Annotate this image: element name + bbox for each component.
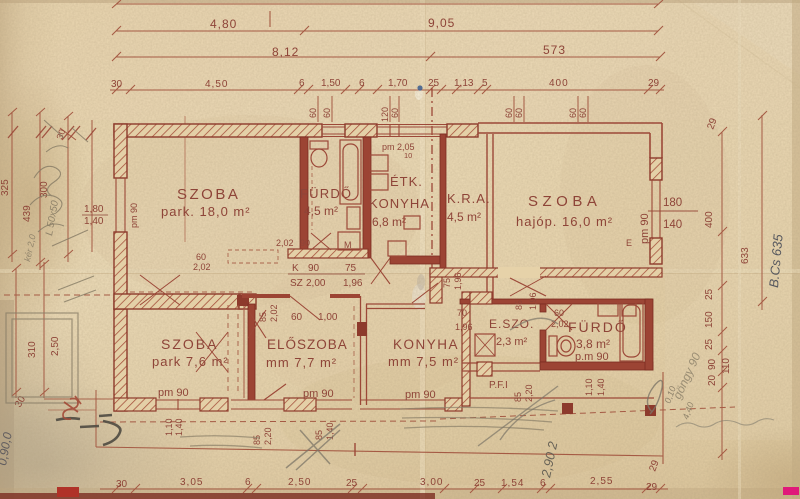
svg-text:25: 25 [704, 288, 715, 300]
svg-text:325: 325 [0, 179, 11, 196]
svg-text:75: 75 [442, 278, 452, 288]
svg-text:2,20: 2,20 [263, 427, 273, 445]
svg-text:1,40: 1,40 [84, 216, 104, 227]
svg-text:hajóp. 16,0 m²: hajóp. 16,0 m² [516, 214, 613, 229]
svg-text:4,80: 4,80 [210, 17, 237, 31]
svg-text:110: 110 [721, 358, 732, 374]
svg-text:park. 18,0 m²: park. 18,0 m² [161, 204, 251, 219]
svg-text:KONYHA: KONYHA [369, 196, 430, 211]
svg-text:60: 60 [322, 108, 332, 118]
svg-text:400: 400 [704, 211, 715, 228]
svg-text:FÜRDŐ: FÜRDŐ [568, 318, 628, 335]
svg-text:2,00: 2,00 [306, 278, 326, 289]
svg-text:mm 7,7 m²: mm 7,7 m² [266, 355, 337, 370]
svg-text:4,50: 4,50 [205, 79, 228, 90]
svg-text:2,55: 2,55 [590, 476, 613, 487]
svg-text:1,70: 1,70 [388, 78, 408, 89]
svg-text:25: 25 [704, 338, 715, 350]
svg-text:400: 400 [549, 78, 569, 89]
svg-text:SZ: SZ [290, 278, 303, 289]
svg-text:60: 60 [308, 108, 318, 118]
svg-text:1,40: 1,40 [596, 378, 606, 396]
svg-text:6: 6 [299, 78, 305, 89]
svg-text:60: 60 [568, 108, 578, 118]
svg-text:4,5 m²: 4,5 m² [304, 204, 338, 218]
svg-text:439: 439 [22, 205, 33, 222]
svg-text:90: 90 [707, 358, 718, 370]
svg-text:pm 90: pm 90 [303, 388, 334, 400]
svg-text:p.m 90: p.m 90 [575, 351, 609, 363]
svg-text:4,5 m²: 4,5 m² [447, 210, 481, 224]
svg-text:60: 60 [554, 308, 564, 318]
svg-text:60: 60 [196, 252, 206, 262]
svg-text:ÉTK.: ÉTK. [390, 174, 423, 189]
svg-text:2,02: 2,02 [193, 262, 211, 272]
svg-text:6: 6 [245, 477, 251, 488]
svg-text:1,80: 1,80 [84, 204, 104, 215]
svg-text:310: 310 [27, 341, 38, 358]
svg-text:park 7,6 m²: park 7,6 m² [152, 354, 229, 369]
svg-text:FÜRDŐ: FÜRDŐ [300, 186, 352, 201]
svg-text:180: 180 [663, 197, 682, 209]
svg-text:6: 6 [540, 478, 546, 489]
svg-text:25: 25 [474, 478, 486, 489]
svg-text:2,02: 2,02 [269, 304, 279, 322]
svg-text:85: 85 [258, 312, 268, 322]
svg-text:3,05: 3,05 [180, 477, 203, 488]
svg-text:2,50: 2,50 [288, 477, 311, 488]
svg-text:ELŐSZOBA: ELŐSZOBA [267, 337, 348, 352]
svg-text:2,3 m²: 2,3 m² [496, 336, 528, 348]
svg-text:pm 90: pm 90 [158, 387, 189, 399]
svg-text:1,50: 1,50 [321, 78, 341, 89]
svg-text:75: 75 [345, 263, 357, 274]
svg-text:mm 7,5 m²: mm 7,5 m² [388, 354, 459, 369]
svg-text:10: 10 [404, 151, 412, 160]
svg-text:1,54: 1,54 [501, 478, 524, 489]
svg-text:pm 90: pm 90 [129, 203, 139, 228]
svg-text:140: 140 [663, 219, 682, 231]
svg-text:150: 150 [704, 311, 715, 328]
svg-text:29: 29 [646, 482, 658, 493]
svg-text:1,10: 1,10 [164, 418, 174, 436]
svg-text:90: 90 [300, 238, 310, 248]
svg-text:1,96: 1,96 [453, 272, 463, 290]
svg-text:20: 20 [707, 374, 718, 386]
svg-text:SZOBA: SZOBA [528, 193, 601, 210]
svg-text:SZOBA: SZOBA [161, 336, 218, 352]
svg-text:60: 60 [390, 108, 400, 118]
svg-text:M: M [344, 240, 352, 250]
svg-text:KONYHA: KONYHA [393, 337, 459, 352]
svg-text:1,10: 1,10 [584, 378, 594, 396]
svg-text:1,96: 1,96 [528, 292, 538, 310]
svg-text:1,96: 1,96 [455, 322, 473, 332]
svg-text:8,12: 8,12 [272, 45, 299, 59]
svg-text:30: 30 [111, 79, 123, 90]
svg-text:70: 70 [457, 308, 467, 318]
svg-text:1,40: 1,40 [174, 418, 184, 436]
svg-text:K: K [292, 263, 299, 274]
svg-text:29: 29 [648, 78, 660, 89]
svg-text:60: 60 [514, 108, 524, 118]
svg-text:25: 25 [346, 478, 358, 489]
svg-text:25: 25 [428, 78, 440, 89]
svg-text:P.F.I: P.F.I [489, 380, 508, 391]
svg-text:K.R.A.: K.R.A. [447, 191, 491, 206]
svg-text:3,8 m²: 3,8 m² [576, 337, 610, 351]
svg-text:1,00: 1,00 [318, 312, 338, 323]
svg-text:SZOBA: SZOBA [177, 186, 240, 203]
svg-text:60: 60 [291, 312, 303, 323]
svg-text:2,20: 2,20 [524, 384, 534, 402]
svg-text:pm 90: pm 90 [639, 213, 651, 244]
svg-text:85: 85 [252, 435, 262, 445]
svg-text:60: 60 [578, 108, 588, 118]
svg-text:85: 85 [514, 300, 524, 310]
svg-text:2,50: 2,50 [50, 336, 61, 356]
svg-text:3,00: 3,00 [420, 477, 443, 488]
svg-text:5: 5 [482, 78, 488, 89]
svg-text:E: E [626, 238, 632, 248]
svg-text:6: 6 [359, 78, 365, 89]
svg-text:120: 120 [380, 107, 390, 122]
svg-text:90: 90 [308, 263, 320, 274]
svg-text:1,96: 1,96 [343, 278, 363, 289]
svg-text:6,8 m²: 6,8 m² [372, 215, 406, 229]
svg-text:1,13: 1,13 [454, 78, 474, 89]
svg-text:2,02: 2,02 [276, 238, 294, 248]
svg-text:60: 60 [504, 108, 514, 118]
svg-text:633: 633 [740, 247, 751, 264]
svg-text:573: 573 [543, 43, 566, 57]
svg-text:85: 85 [513, 392, 523, 402]
svg-text:pm 90: pm 90 [405, 389, 436, 401]
svg-text:9,05: 9,05 [428, 16, 455, 30]
svg-text:30: 30 [116, 479, 128, 490]
